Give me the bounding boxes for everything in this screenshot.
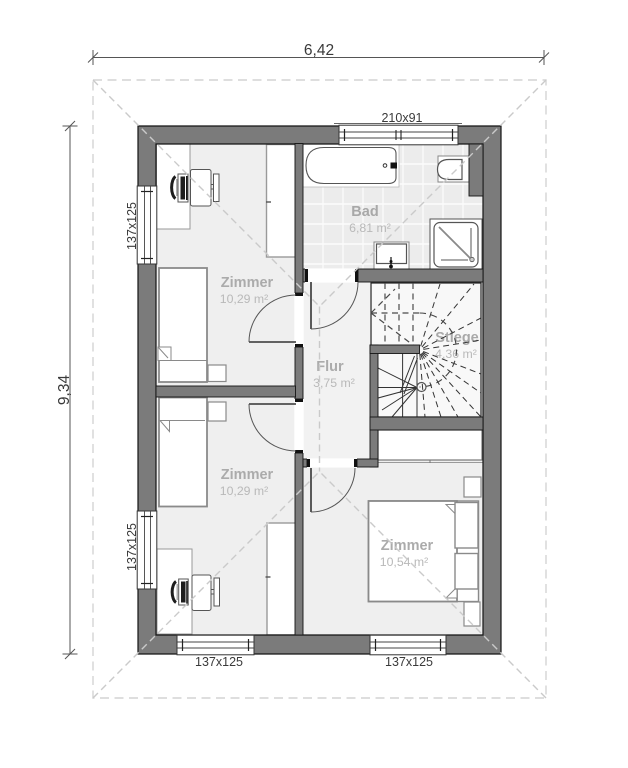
svg-text:10,29 m²: 10,29 m² (220, 484, 269, 498)
svg-text:6,81 m²: 6,81 m² (349, 221, 391, 235)
svg-text:10,54 m²: 10,54 m² (380, 555, 429, 569)
svg-text:10,29 m²: 10,29 m² (220, 292, 269, 306)
svg-text:9,34: 9,34 (56, 375, 73, 406)
svg-text:137x125: 137x125 (125, 202, 139, 250)
svg-text:Zimmer: Zimmer (221, 467, 274, 483)
svg-text:210x91: 210x91 (381, 111, 422, 125)
svg-text:Bad: Bad (351, 204, 378, 220)
svg-text:Flur: Flur (316, 359, 344, 375)
svg-text:137x125: 137x125 (385, 655, 433, 669)
svg-text:137x125: 137x125 (125, 523, 139, 571)
svg-text:6,42: 6,42 (304, 42, 334, 59)
svg-text:Zimmer: Zimmer (221, 275, 274, 291)
svg-text:137x125: 137x125 (195, 655, 243, 669)
